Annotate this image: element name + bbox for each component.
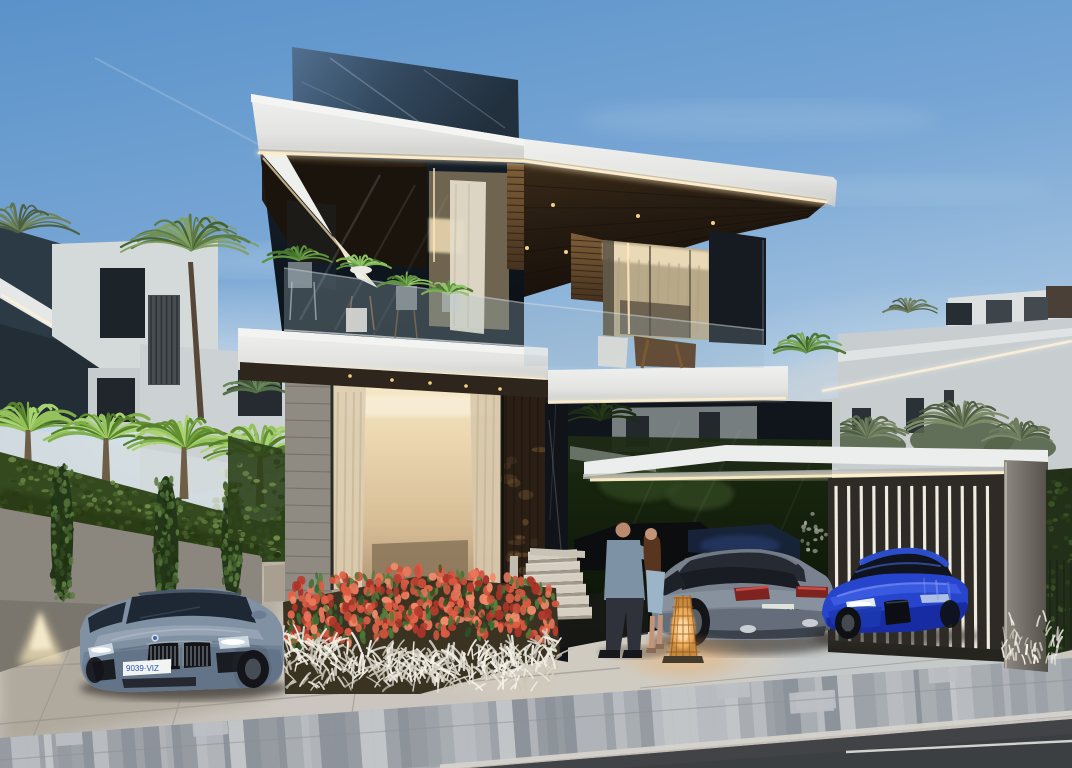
svg-text:9039·VIZ: 9039·VIZ xyxy=(126,664,159,673)
